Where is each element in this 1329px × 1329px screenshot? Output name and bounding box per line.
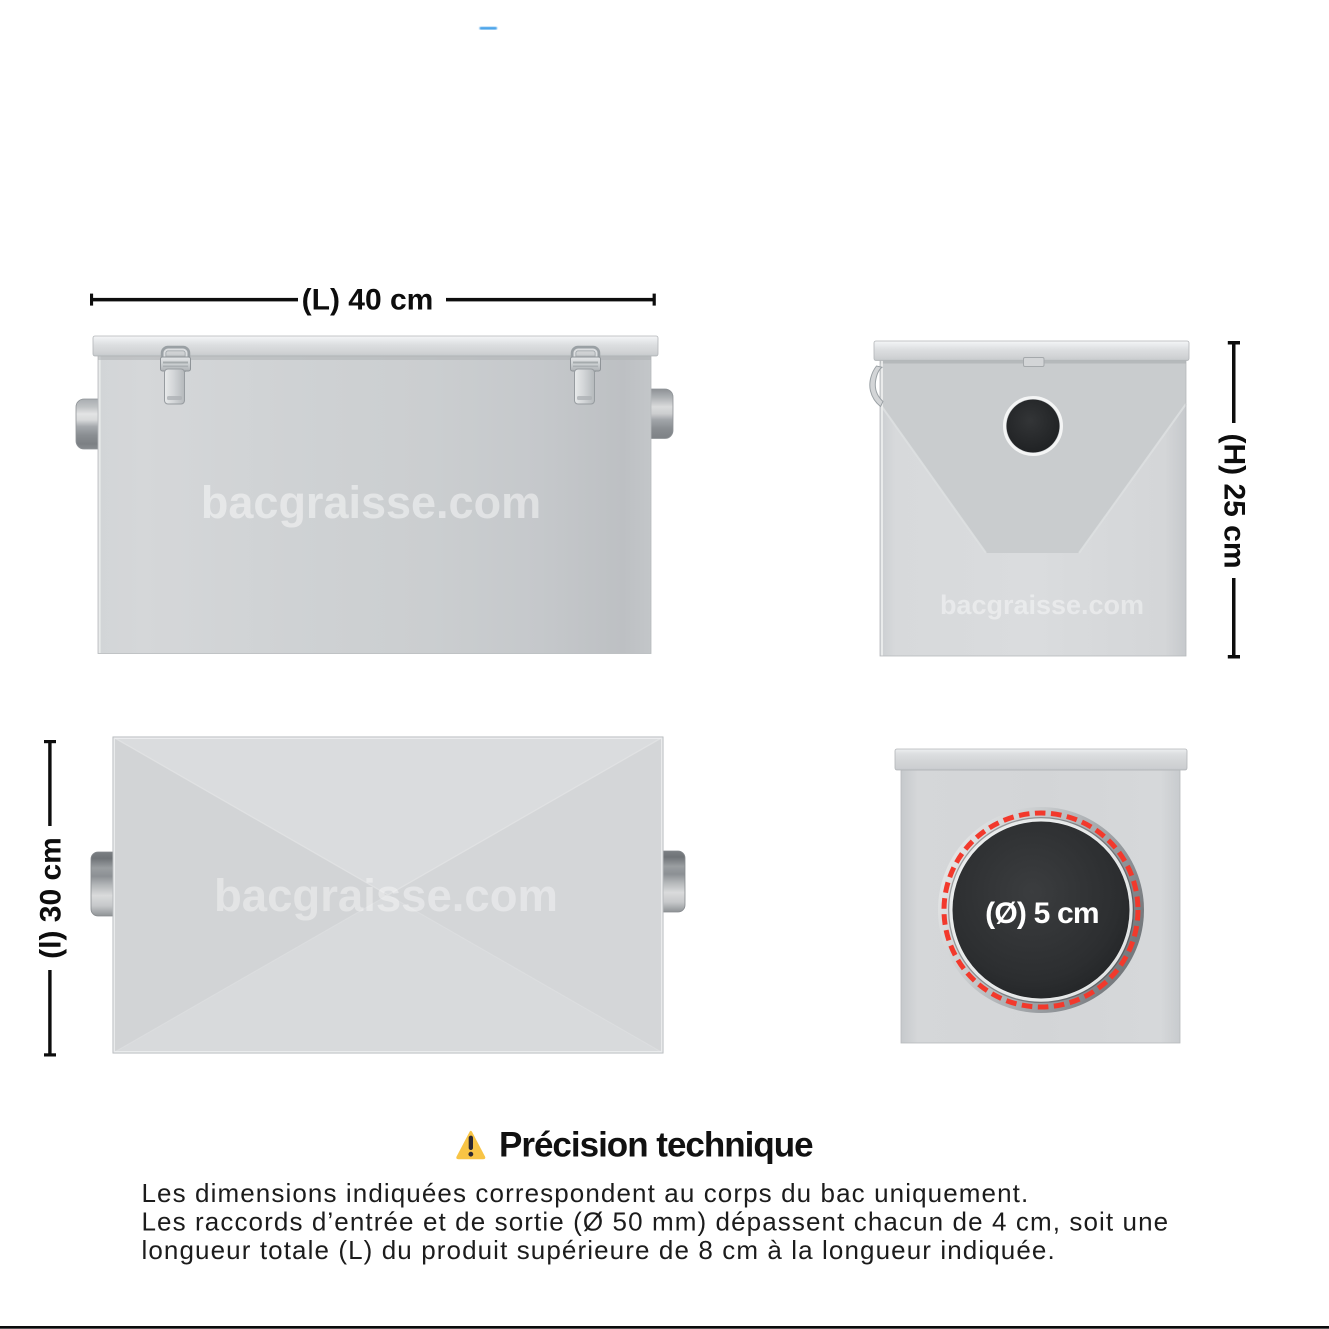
svg-text:longueur totale (L) du produit: longueur totale (L) du produit supérieur… <box>142 1235 1056 1265</box>
svg-text:bacgraisse.com: bacgraisse.com <box>214 870 558 921</box>
svg-text:Précision technique: Précision technique <box>499 1126 813 1165</box>
svg-text:Les raccords d’entrée et de so: Les raccords d’entrée et de sortie (Ø 50… <box>142 1207 1170 1237</box>
svg-text:(l) 30 cm: (l) 30 cm <box>34 837 67 959</box>
svg-text:Les dimensions indiquées corre: Les dimensions indiquées correspondent a… <box>142 1178 1030 1208</box>
svg-text:(H) 25 cm: (H) 25 cm <box>1218 433 1251 568</box>
svg-text:bacgraisse.com: bacgraisse.com <box>940 590 1144 620</box>
svg-text:(Ø) 5 cm: (Ø) 5 cm <box>985 897 1099 930</box>
svg-text:(L) 40 cm: (L) 40 cm <box>302 284 434 317</box>
svg-text:bacgraisse.com: bacgraisse.com <box>201 477 541 528</box>
